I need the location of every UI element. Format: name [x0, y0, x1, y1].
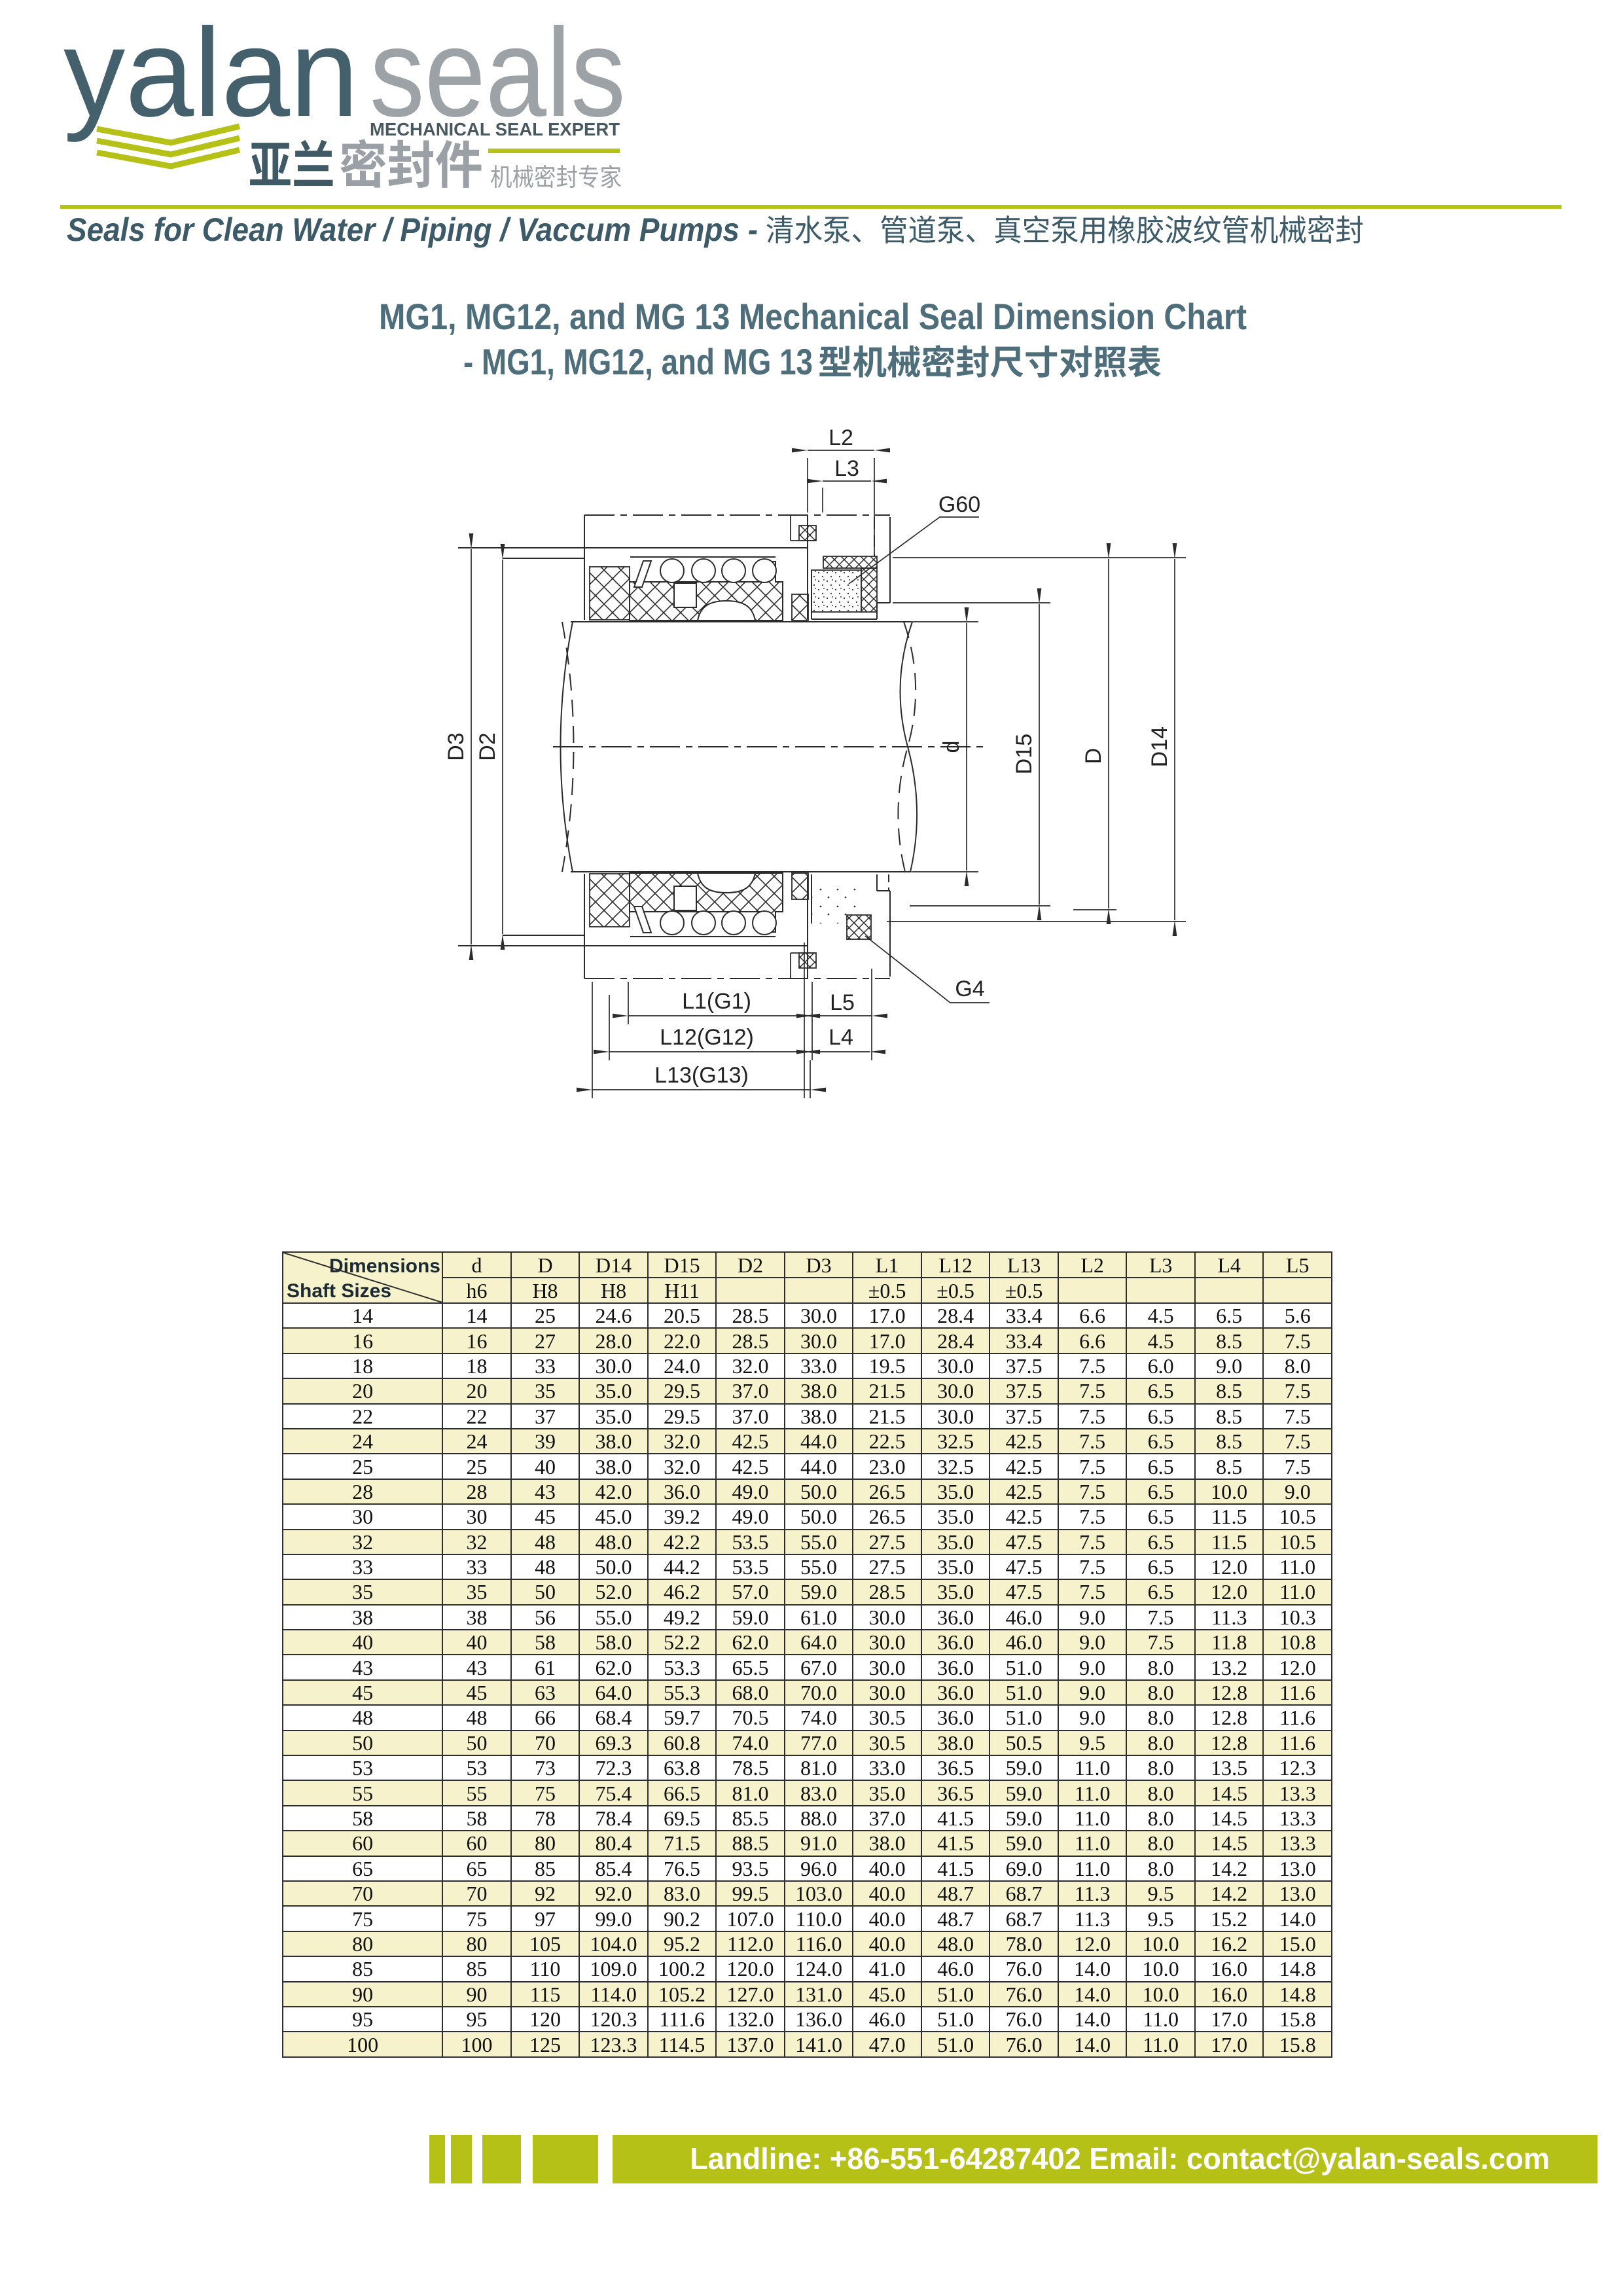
svg-text:L12(G12): L12(G12) [660, 1025, 754, 1050]
svg-text:Shaft Sizes: Shaft Sizes [287, 1280, 391, 1302]
svg-text:D14: D14 [1147, 726, 1172, 767]
svg-text:d: d [939, 741, 964, 753]
svg-text:D3: D3 [444, 732, 469, 761]
svg-text:MG1, MG12, and MG 13 Mechanica: MG1, MG12, and MG 13 Mechanical Seal Dim… [379, 296, 1247, 337]
svg-text:G4: G4 [955, 977, 984, 1001]
svg-text:Landline: +86-551-64287402 Ema: Landline: +86-551-64287402 Email: contac… [690, 2142, 1550, 2176]
svg-text:D2: D2 [475, 732, 500, 761]
svg-text:L3: L3 [834, 456, 859, 481]
svg-text:G60: G60 [938, 492, 980, 517]
svg-text:L1(G1): L1(G1) [682, 989, 751, 1014]
svg-text:MECHANICAL SEAL EXPERT: MECHANICAL SEAL EXPERT [370, 119, 620, 139]
svg-text:L2: L2 [829, 425, 853, 450]
svg-text:- MG1, MG12, and MG 13: - MG1, MG12, and MG 13 [463, 341, 813, 382]
svg-text:D: D [1081, 748, 1106, 764]
svg-text:L5: L5 [830, 990, 855, 1015]
svg-text:Seals for Clean Water / Piping: Seals for Clean Water / Piping / Vaccum … [67, 211, 758, 248]
svg-text:L4: L4 [829, 1025, 853, 1050]
svg-text:yalan: yalan [63, 2, 359, 143]
svg-text:L13(G13): L13(G13) [654, 1063, 749, 1088]
svg-text:Dimensions: Dimensions [329, 1255, 440, 1277]
svg-text:D15: D15 [1012, 734, 1037, 774]
